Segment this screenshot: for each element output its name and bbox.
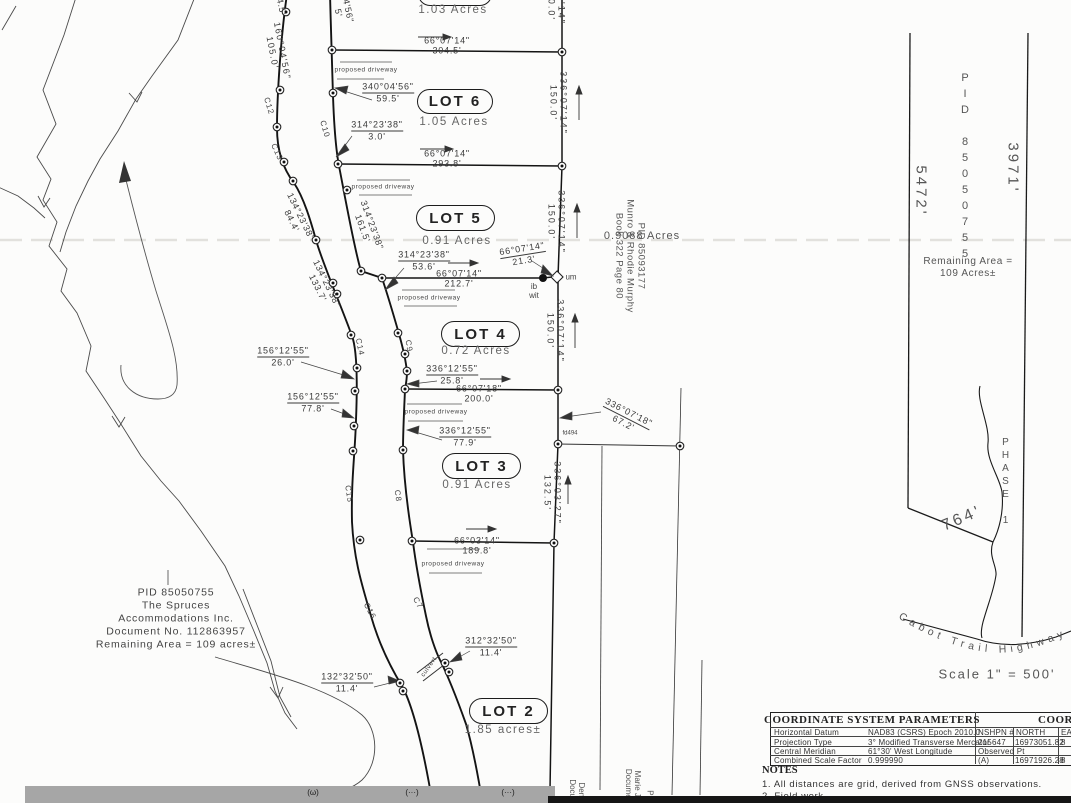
east-length-label: 3971' xyxy=(1005,142,1022,193)
curve-label-c9: C9 xyxy=(404,339,415,353)
coord-cell: 16973051.82 xyxy=(1015,738,1064,747)
curve-label-c8: C8 xyxy=(393,489,404,502)
bearing-text: 156°12'55" xyxy=(257,347,309,358)
svg-text:Cabot Trail Highway: Cabot Trail Highway xyxy=(897,610,1069,655)
bearing-distance-label: 340°04'56"59.5' xyxy=(362,83,414,104)
ib-witness-point xyxy=(539,274,547,282)
proposed-driveway-label: proposed driveway xyxy=(404,409,467,416)
remainder-area-label: Remaining Area = 109 Acres± xyxy=(923,256,1012,280)
distance-text: 53.6' xyxy=(412,263,435,272)
distance-text: 212.7' xyxy=(444,280,473,289)
bearing-text: 336°07'14" xyxy=(559,71,568,135)
coord-cell: (A) xyxy=(978,756,989,765)
lot-badge-lot6: LOT 6 xyxy=(417,89,493,114)
bearing-text: 336°07'14" xyxy=(557,190,566,254)
distance-text: 189.8' xyxy=(462,547,491,556)
bearing-distance-label: 336°12'55"77.9' xyxy=(439,427,491,448)
bearing-text: 336°03'27" xyxy=(553,461,562,525)
scale-label: Scale 1" = 500' xyxy=(939,667,1056,682)
distance-text: 293.8' xyxy=(432,160,461,169)
lot-badge-lot2: LOT 2 xyxy=(469,698,548,724)
table-row-key: Combined Scale Factor xyxy=(774,756,862,765)
bearing-text: 312°32'50" xyxy=(465,637,517,648)
table-title: COORDINATE SYSTEM PARAMETERS xyxy=(764,714,980,726)
lot-area-lot6: 1.05 Acres xyxy=(419,116,488,128)
distance-text: 11.4' xyxy=(480,649,503,658)
survey-plan-scan: Cabot Trail Highway 1.03 Acres LOT 6 1.0… xyxy=(0,0,1071,803)
distance-text: 3.0' xyxy=(368,133,385,142)
remainder-pid-label: PID 85050755 xyxy=(959,72,971,264)
remainder-parcel-lines xyxy=(903,33,1071,645)
coord-cell: 8 xyxy=(1061,738,1066,747)
coord-cell: 215647 xyxy=(978,738,1006,747)
spruces-pid-text: PID 85050755 xyxy=(96,587,256,600)
bearing-distance-label: 66°07'18"200.0' xyxy=(456,385,502,404)
lot-badge-lot3: LOT 3 xyxy=(442,453,521,479)
bearing-text: 314°23'38" xyxy=(351,121,403,132)
spruces-owner-block: PID 85050755 The Spruces Accommodations … xyxy=(96,587,256,652)
um-monument-diamond xyxy=(551,271,563,283)
scan-edge-gray-bar xyxy=(25,786,555,803)
bearing-distance-label: 7'14"0.0' xyxy=(547,0,566,25)
bearing-text: 7'14" xyxy=(557,0,566,25)
bearing-distance-label: 66°07'14"304.5' xyxy=(424,37,470,56)
table-row-value: 3° Modified Transverse Mercator xyxy=(868,738,990,747)
lot-area-lot7: 1.03 Acres xyxy=(418,4,487,16)
notes-title: NOTES xyxy=(762,765,798,776)
table-row-key: Projection Type xyxy=(774,738,832,747)
murphy-owner-text: Munro & Rhodie Murphy xyxy=(625,199,636,312)
lot-area-lot3: 0.91 Acres xyxy=(442,479,511,491)
bearing-text: 66°07'14" xyxy=(424,37,470,46)
coord-header: NORTH xyxy=(1016,728,1045,737)
bearing-distance-label: 66°07'14"212.7' xyxy=(436,270,482,289)
highway-label: Cabot Trail Highway xyxy=(897,610,1069,655)
lot-area-lot2: 1.85 acres± xyxy=(465,724,542,736)
ib-text: ib xyxy=(531,282,537,291)
flow-arrow xyxy=(119,161,177,399)
proposed-driveway-label: proposed driveway xyxy=(397,295,460,302)
distance-text: 150.0' xyxy=(549,85,558,121)
bearing-text: 66°07'18" xyxy=(456,385,502,394)
distance-text: 304.5' xyxy=(432,47,461,56)
table-row-value: 61°30' West Longitude xyxy=(868,747,952,756)
coord-cell: 16971926.28 xyxy=(1015,756,1064,765)
coord-cell: 8 xyxy=(1061,756,1066,765)
bearing-distance-label: 132°32'50"11.4' xyxy=(321,673,373,694)
bearing-distance-label: 336°07'14"150.0' xyxy=(549,71,568,135)
table-row-key: Horizontal Datum xyxy=(774,728,839,737)
bearing-text: 66°03'14" xyxy=(454,537,500,546)
bearing-distance-label: 156°12'55"77.8' xyxy=(287,393,339,414)
lot-area-lot4: 0.72 Acres xyxy=(441,345,510,357)
spruces-owner2-text: Accommodations Inc. xyxy=(96,613,256,626)
spruces-doc-text: Document No. 112863957 xyxy=(96,626,256,639)
um-label: um xyxy=(565,273,576,282)
distance-text: 150.0' xyxy=(547,204,556,240)
murphy-parcel-text: PID 85093177 Munro & Rhodie Murphy Book … xyxy=(614,199,647,312)
coord-header: NSHPN # xyxy=(978,728,1014,737)
scan-edge-glyph: (ω) xyxy=(307,788,319,797)
distance-text: 59.5' xyxy=(376,95,399,104)
bearing-text: 314°23'38" xyxy=(398,251,450,262)
distance-text: 77.9' xyxy=(453,439,476,448)
west-length-label: 5472' xyxy=(913,165,930,216)
phase-label: PHASE 1 xyxy=(1000,437,1011,528)
distance-text: 26.0' xyxy=(271,359,294,368)
coord-header: EA xyxy=(1061,728,1071,737)
plan-linework: Cabot Trail Highway xyxy=(0,0,1071,803)
remainder-area-line1: Remaining Area = xyxy=(923,256,1012,268)
murphy-pid-text: PID 85093177 xyxy=(636,223,647,290)
murphy-book-text: Book 322 Page 80 xyxy=(614,213,625,299)
ib-wit-label: ibwit xyxy=(529,282,539,300)
distance-text: 150.0' xyxy=(546,313,555,349)
bearing-distance-label: 66°03'14"189.8' xyxy=(454,537,500,556)
coord-cell: Observed Pt xyxy=(978,747,1025,756)
spruces-owner1-text: The Spruces xyxy=(96,600,256,613)
bearing-text: 340°04'56" xyxy=(362,83,414,94)
bearing-distance-label: 156°12'55"26.0' xyxy=(257,347,309,368)
bearing-distance-label: 336°12'55"25.8' xyxy=(426,365,478,386)
proposed-driveway-label: proposed driveway xyxy=(421,561,484,568)
wit-text: wit xyxy=(529,291,539,300)
bearing-distance-label: 336°07'14"150.0' xyxy=(546,299,565,363)
distance-text: 11.4' xyxy=(336,685,359,694)
bearing-text: 336°12'55" xyxy=(439,427,491,438)
bearing-text: 336°07'14" xyxy=(556,299,565,363)
bearing-text: 336°12'55" xyxy=(426,365,478,376)
bearing-text: 66°07'14" xyxy=(424,150,470,159)
bearing-distance-label: 336°07'14"150.0' xyxy=(547,190,566,254)
table-row-value: NAD83 (CSRS) Epoch 2010.0 xyxy=(868,728,980,737)
lot-badge-lot5: LOT 5 xyxy=(416,205,495,231)
note-1: 1. All distances are grid, derived from … xyxy=(762,779,1042,790)
fd494-label: fd494 xyxy=(562,430,577,439)
table-row-key: Central Meridian xyxy=(774,747,836,756)
spruces-remaining-text: Remaining Area = 109 acres± xyxy=(96,639,256,652)
scan-edge-glyph: (···) xyxy=(501,788,514,797)
bearing-distance-label: 4'56"5' xyxy=(331,0,355,26)
bearing-text: 66°07'14" xyxy=(436,270,482,279)
table-row-value: 0.999990 xyxy=(868,756,903,765)
bearing-text: 156°12'55" xyxy=(287,393,339,404)
coord-table-title: COORDIN xyxy=(1038,714,1071,726)
remainder-area-line2: 109 Acres± xyxy=(923,268,1012,280)
distance-text: 5' xyxy=(333,8,344,18)
distance-text: 77.8' xyxy=(301,405,324,414)
bearing-distance-label: 336°03'27"132.5' xyxy=(543,461,562,525)
lot-badge-lot4: LOT 4 xyxy=(441,321,520,347)
distance-text: 0.0' xyxy=(547,0,556,21)
bearing-distance-label: 66°07'14"293.8' xyxy=(424,150,470,169)
distance-text: 200.0' xyxy=(464,395,493,404)
bearing-distance-label: 314°23'38"3.0' xyxy=(351,121,403,142)
bearing-distance-label: 312°32'50"11.4' xyxy=(465,637,517,658)
proposed-driveway-label: proposed driveway xyxy=(334,67,397,74)
scan-edge-glyph: (···) xyxy=(405,788,418,797)
distance-text: 132.5' xyxy=(543,475,552,511)
scan-edge-black-bar xyxy=(548,796,1071,803)
proposed-driveway-label: proposed driveway xyxy=(351,184,414,191)
bearing-text: 132°32'50" xyxy=(321,673,373,684)
lot-area-lot5: 0.91 Acres xyxy=(422,235,491,247)
